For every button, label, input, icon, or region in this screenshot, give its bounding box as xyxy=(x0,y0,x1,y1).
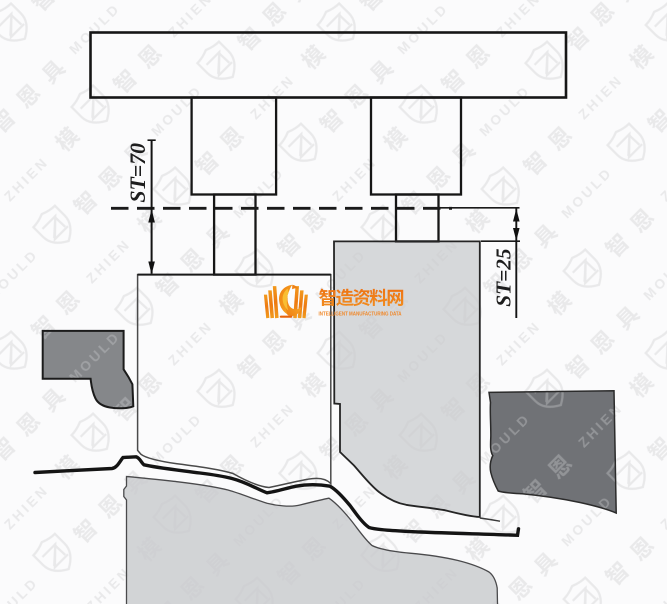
svg-text:ST=70: ST=70 xyxy=(126,143,150,203)
svg-text:INTELLIGENT MANUFACTURING DATA: INTELLIGENT MANUFACTURING DATA xyxy=(319,312,402,318)
svg-text:ST=25: ST=25 xyxy=(492,248,516,307)
